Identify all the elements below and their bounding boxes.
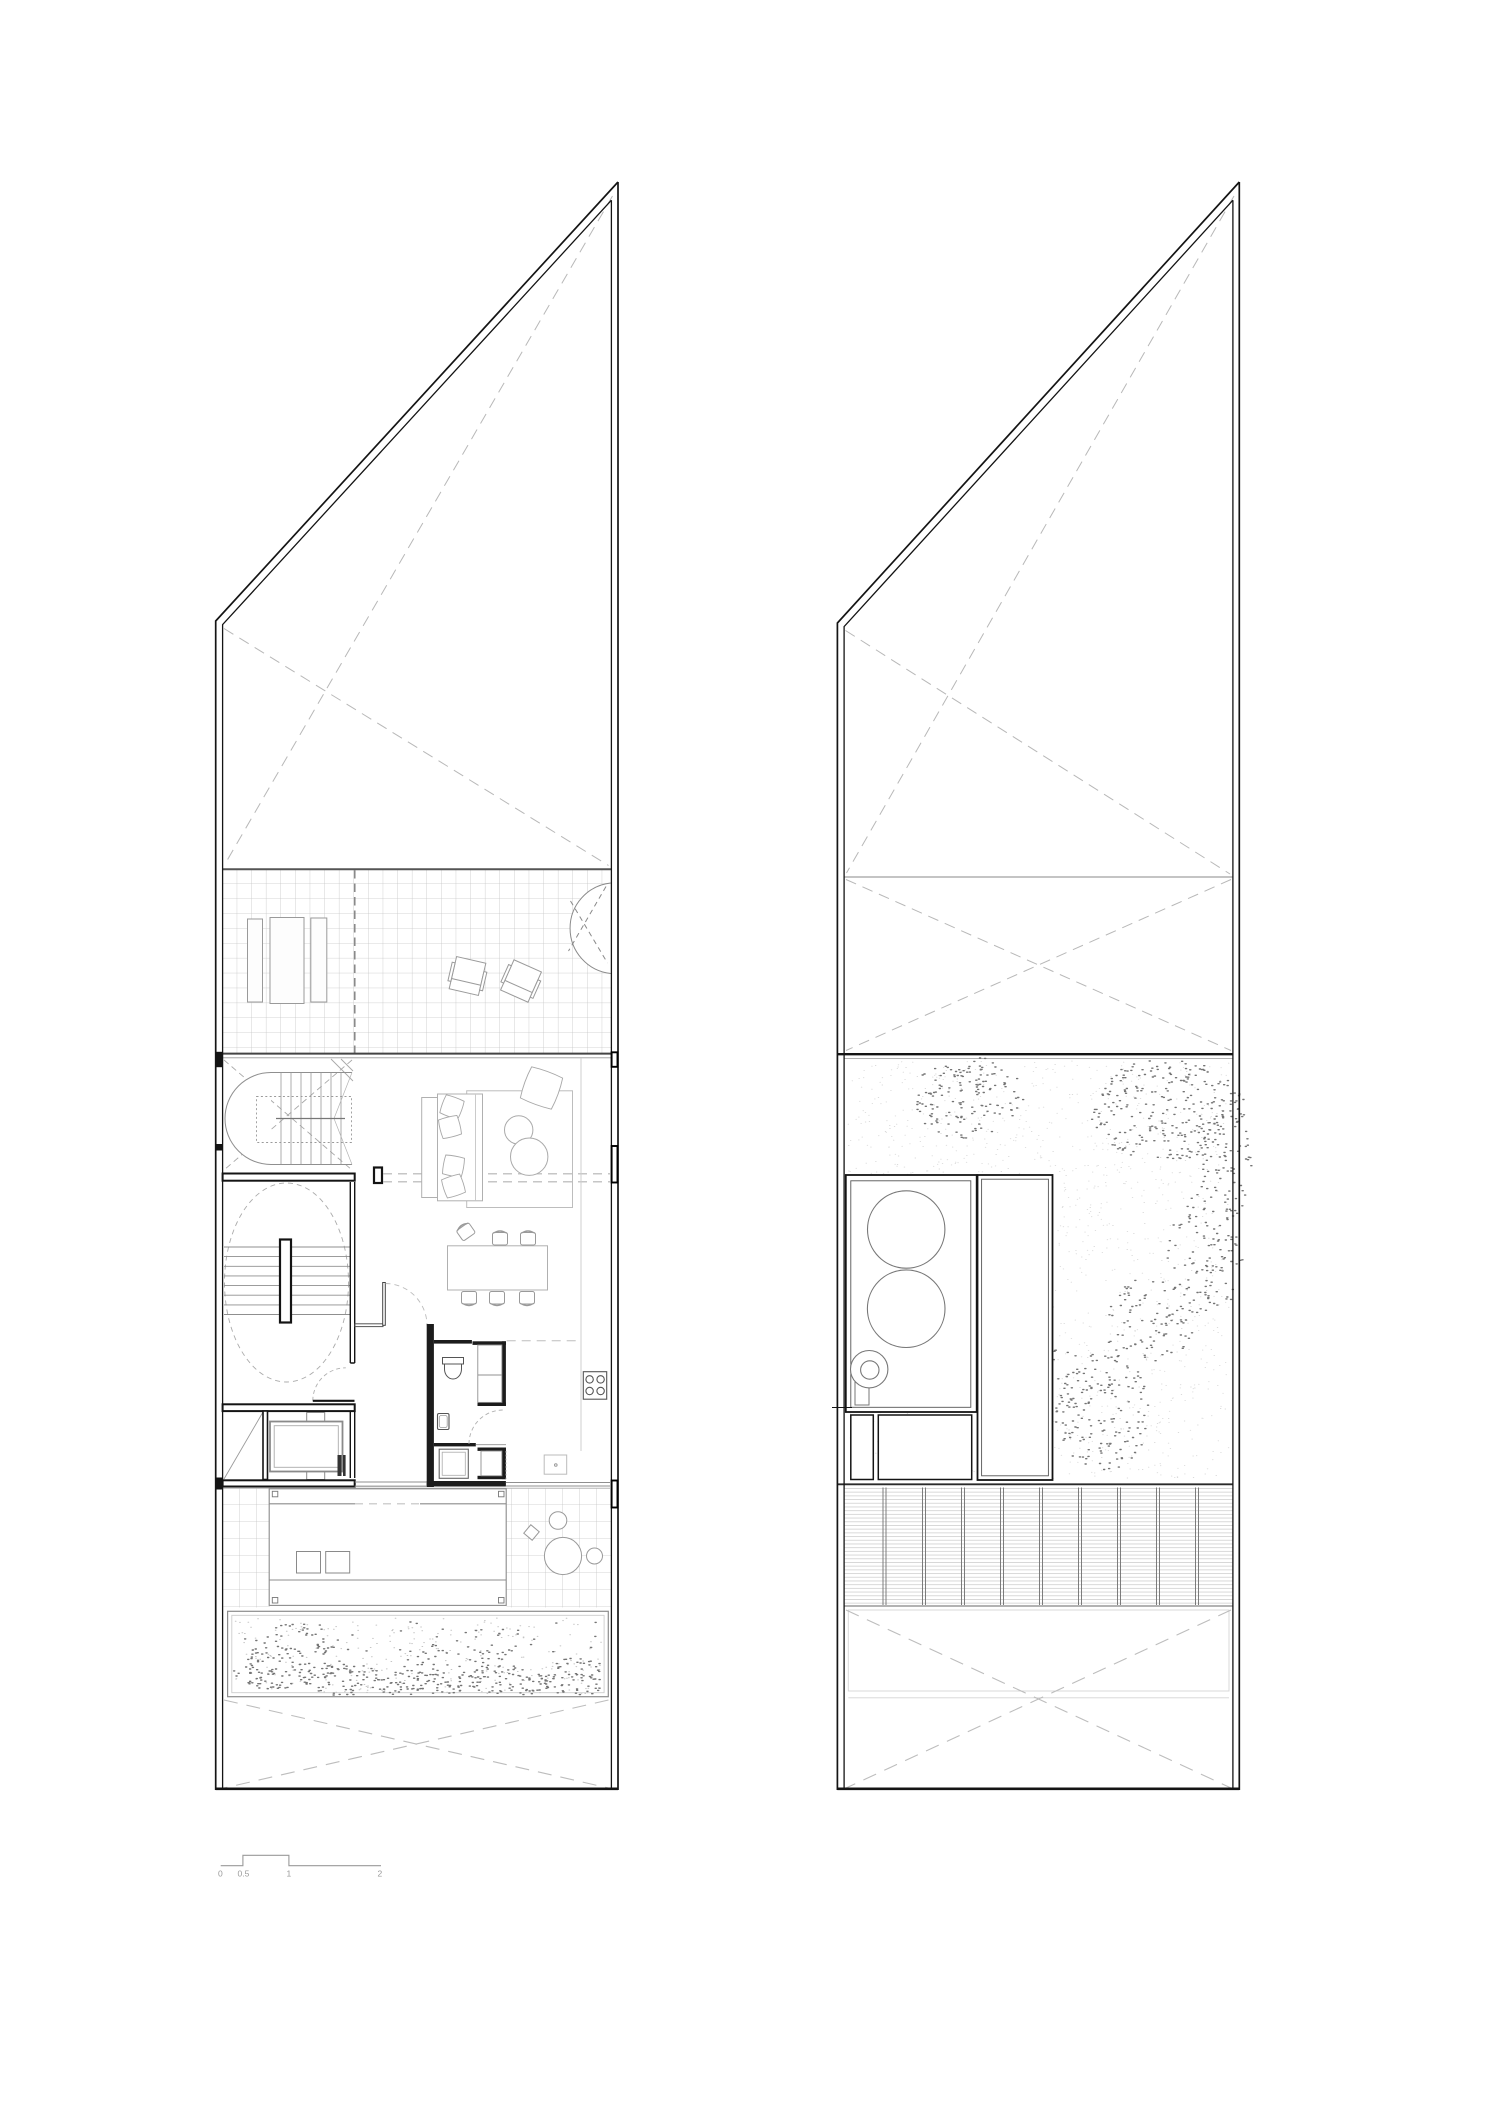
svg-text:0: 0 xyxy=(218,1869,223,1879)
svg-text:2: 2 xyxy=(378,1869,383,1879)
svg-text:0.5: 0.5 xyxy=(238,1869,250,1879)
svg-text:1: 1 xyxy=(287,1869,292,1879)
